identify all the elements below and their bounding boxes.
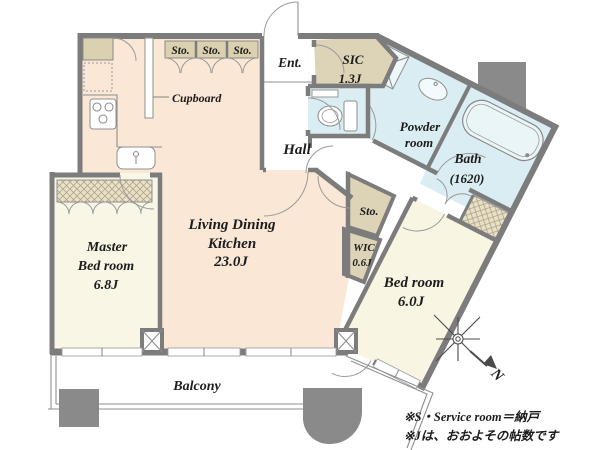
label-sic: SIC — [343, 52, 364, 67]
label-powder-2: room — [405, 135, 433, 150]
structural-column-bottom-left — [59, 389, 99, 427]
floor-plan-page: Sto. Sto. Sto. Cupboard Ent. SIC 1.3J Po… — [0, 0, 600, 450]
label-bedroom: Bed room — [383, 275, 444, 291]
label-bath: Bath — [453, 151, 481, 166]
label-ldk-size: 23.0J — [213, 254, 248, 270]
label-ldk-1: Living Dining — [187, 217, 276, 233]
label-ldk-2: Kitchen — [207, 236, 256, 252]
label-master-1: Master — [86, 240, 128, 255]
label-storage-2: Sto. — [202, 45, 220, 57]
footnote-line-2: ※Jは、おおよその帖数です — [404, 429, 561, 443]
label-powder-1: Powder — [400, 119, 441, 134]
label-master-size: 6.8J — [94, 278, 120, 293]
label-wic: WIC — [353, 242, 375, 254]
label-cupboard: Cupboard — [172, 91, 222, 105]
label-balcony: Balcony — [172, 379, 221, 394]
pillar-x-right — [336, 330, 356, 352]
label-entrance: Ent. — [277, 55, 302, 70]
footnote-line-1: ※S・Service room＝納戸 — [404, 410, 542, 424]
pillar-x-left — [142, 330, 162, 352]
label-storage-1: Sto. — [171, 45, 189, 57]
label-storage-3: Sto. — [233, 45, 251, 57]
label-storage-mid: Sto. — [359, 204, 378, 218]
south-windows — [62, 348, 336, 356]
label-bath-size: (1620) — [450, 171, 485, 186]
label-bedroom-size: 6.0J — [398, 294, 425, 310]
label-master-2: Bed room — [77, 259, 135, 274]
label-hall: Hall — [282, 142, 311, 158]
label-wic-size: 0.6J — [352, 257, 372, 269]
stove-icon — [90, 99, 116, 129]
sink-icon — [117, 147, 155, 169]
label-sic-size: 1.3J — [339, 71, 362, 86]
floor-plan-svg: Sto. Sto. Sto. Cupboard Ent. SIC 1.3J Po… — [0, 0, 600, 450]
